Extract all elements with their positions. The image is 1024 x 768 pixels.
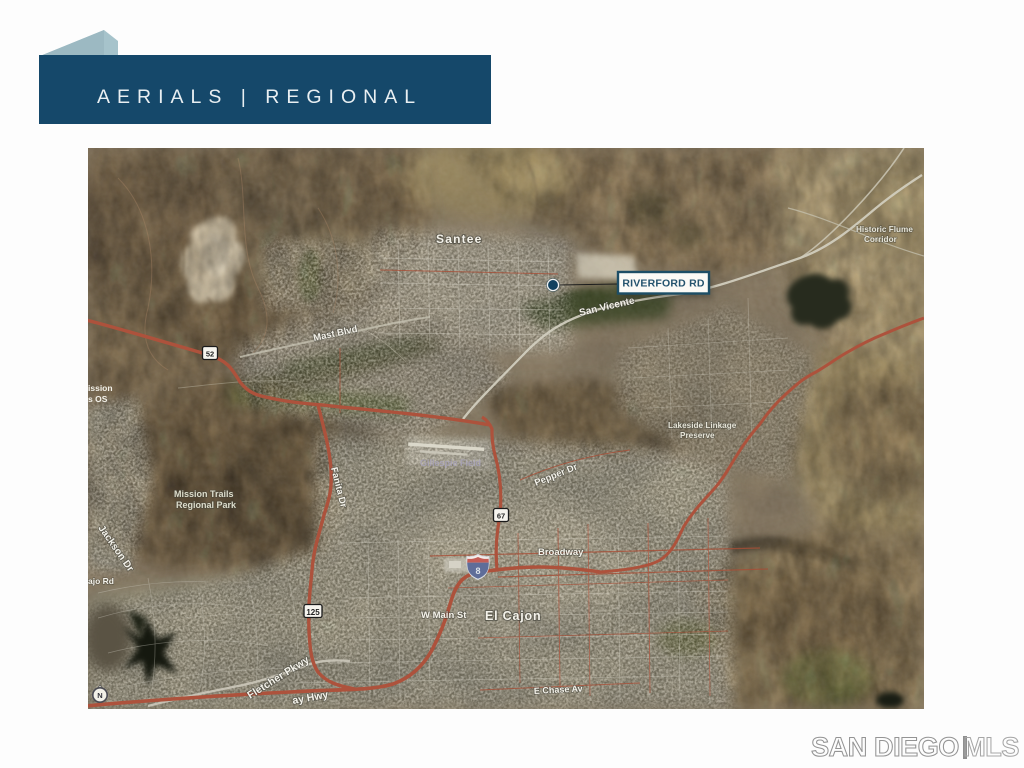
svg-text:s OS: s OS — [88, 394, 108, 404]
svg-text:RIVERFORD RD: RIVERFORD RD — [622, 278, 705, 290]
svg-text:Mission Trails: Mission Trails — [174, 489, 234, 499]
svg-text:N: N — [97, 691, 102, 700]
svg-text:125: 125 — [306, 608, 320, 617]
svg-text:67: 67 — [497, 512, 505, 521]
svg-text:ajo Rd: ajo Rd — [88, 576, 114, 586]
svg-text:Historic Flume: Historic Flume — [856, 225, 913, 234]
svg-text:Preserve: Preserve — [680, 431, 715, 440]
svg-text:ission: ission — [88, 383, 113, 393]
svg-text:Gillespie Field: Gillespie Field — [420, 458, 481, 468]
svg-text:W Main St: W Main St — [421, 610, 467, 621]
svg-text:El Cajon: El Cajon — [485, 609, 541, 623]
svg-text:52: 52 — [206, 350, 214, 359]
svg-text:Lakeside Linkage: Lakeside Linkage — [668, 421, 737, 430]
svg-text:AERIALS | REGIONAL: AERIALS | REGIONAL — [97, 86, 422, 108]
svg-text:8: 8 — [475, 566, 480, 576]
svg-text:Broadway: Broadway — [538, 547, 584, 558]
svg-text:Santee: Santee — [436, 232, 483, 246]
svg-text:Corridor: Corridor — [864, 235, 898, 244]
svg-text:Regional Park: Regional Park — [176, 500, 237, 510]
